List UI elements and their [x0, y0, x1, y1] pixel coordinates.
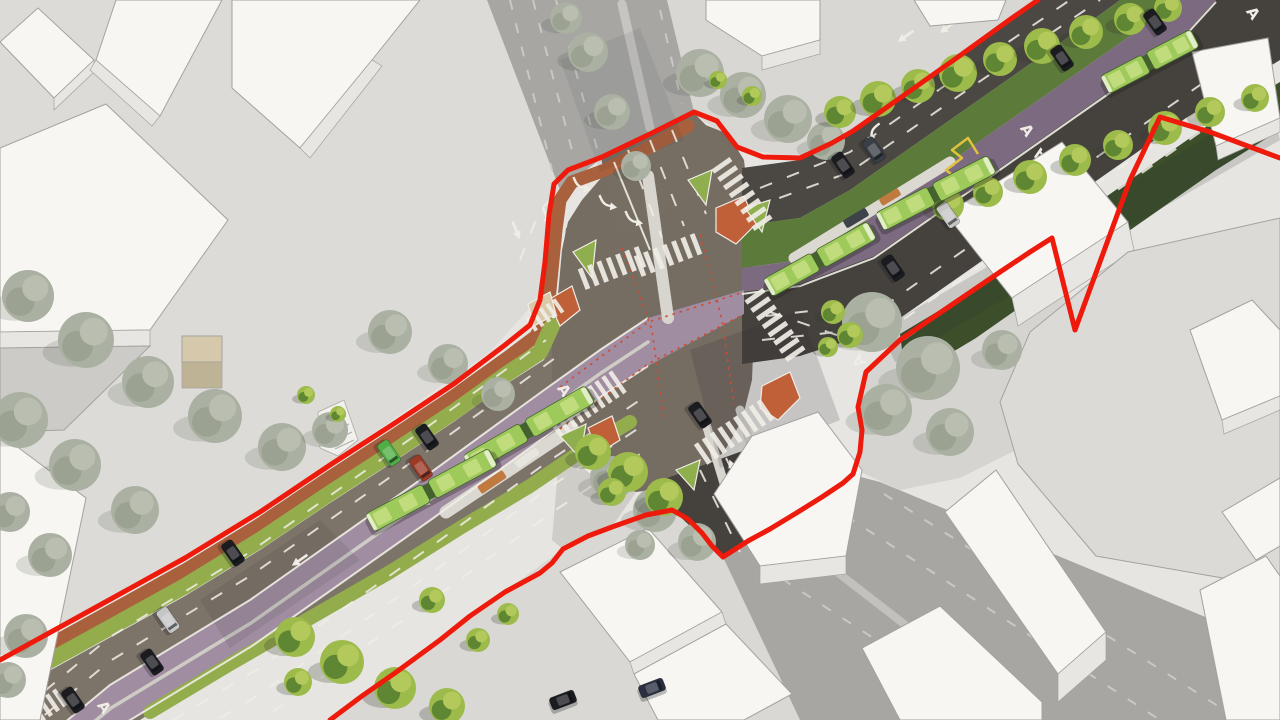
tree-canopy-light	[783, 100, 807, 124]
tree-canopy-light	[475, 630, 487, 642]
tree-canopy-light	[836, 99, 852, 115]
render-canvas: АААААААА	[0, 0, 1280, 720]
tree-canopy-light	[304, 388, 313, 397]
tree-canopy-light	[336, 408, 344, 416]
tree-canopy-light	[609, 481, 623, 495]
tree-canopy-light	[830, 302, 842, 314]
building-tan-box-face	[182, 362, 222, 388]
tree-canopy-light	[562, 5, 578, 21]
tree-canopy-light	[589, 438, 607, 456]
tree-canopy-light	[45, 537, 67, 559]
tree-canopy-light	[1252, 87, 1266, 101]
tree-canopy-light	[14, 398, 42, 426]
tree-canopy-light	[637, 533, 652, 548]
tree-canopy-light	[1082, 18, 1099, 35]
tree-canopy-light	[921, 342, 953, 374]
tree-canopy-light	[1126, 6, 1142, 22]
tree-canopy-light	[295, 671, 309, 685]
tree-canopy-light	[69, 444, 95, 470]
tree-canopy-light	[624, 456, 644, 476]
tree-canopy-light	[6, 496, 26, 516]
tree-canopy-light	[4, 666, 22, 684]
tree-canopy-light	[142, 361, 168, 387]
tree-canopy-light	[443, 692, 461, 710]
tree-canopy-light	[633, 154, 648, 169]
tree-canopy-light	[608, 98, 626, 116]
tree-canopy-light	[865, 298, 895, 328]
tree-canopy-light	[584, 36, 604, 56]
tree-canopy-light	[337, 644, 359, 666]
tree-canopy-light	[1115, 133, 1130, 148]
tree-canopy-light	[130, 491, 154, 515]
tree-canopy-light	[826, 339, 836, 349]
tree-canopy-light	[660, 482, 679, 501]
tree-canopy-light	[1071, 147, 1087, 163]
tree-canopy-light	[506, 605, 517, 616]
tree-canopy-light	[996, 45, 1013, 62]
tree-canopy-light	[291, 621, 311, 641]
tree-canopy-light	[80, 318, 108, 346]
building-tan-box-roof	[182, 336, 222, 362]
tree-canopy-light	[385, 314, 407, 336]
tree-canopy-light	[444, 348, 464, 368]
tree-canopy-light	[998, 334, 1018, 354]
tree-canopy-light	[277, 428, 301, 452]
tree-canopy-light	[22, 275, 48, 301]
tree-canopy-light	[1026, 163, 1043, 180]
tree-canopy-light	[716, 73, 725, 82]
tree-canopy-light	[429, 590, 442, 603]
tree-canopy-light	[209, 394, 236, 421]
tree-canopy-light	[847, 325, 860, 338]
tree-canopy-light	[1207, 100, 1222, 115]
tree-canopy-light	[750, 88, 760, 98]
tree-canopy-light	[494, 380, 511, 397]
building-tan-box	[182, 336, 222, 388]
tree-canopy-light	[874, 85, 892, 103]
tree-canopy-light	[945, 413, 969, 437]
urban-design-render: АААААААА	[0, 0, 1280, 720]
tree-canopy-light	[880, 389, 906, 415]
